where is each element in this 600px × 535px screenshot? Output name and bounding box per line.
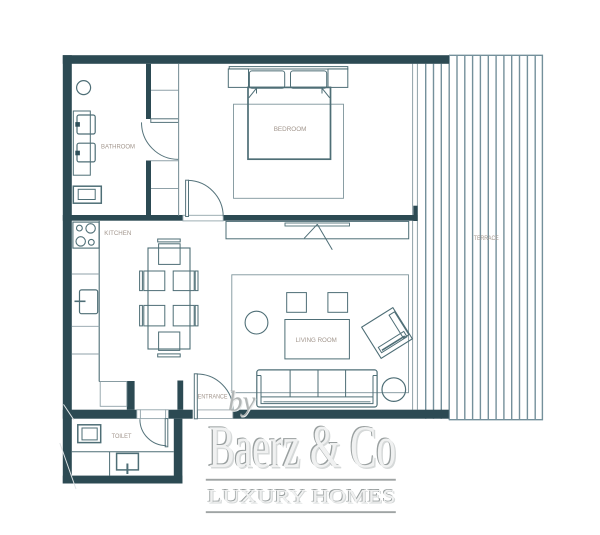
svg-text:LUXURY HOMES: LUXURY HOMES xyxy=(208,487,396,508)
svg-text:Baerz & Co: Baerz & Co xyxy=(209,414,397,480)
svg-text:TOILET: TOILET xyxy=(112,433,132,440)
svg-text:TERRACE: TERRACE xyxy=(474,235,499,242)
svg-text:LIVING ROOM: LIVING ROOM xyxy=(296,337,337,344)
svg-text:ENTRANCE: ENTRANCE xyxy=(198,394,228,400)
svg-text:BATHROOM: BATHROOM xyxy=(101,144,135,151)
svg-text:KITCHEN: KITCHEN xyxy=(104,230,131,237)
svg-text:BEDROOM: BEDROOM xyxy=(274,126,307,133)
